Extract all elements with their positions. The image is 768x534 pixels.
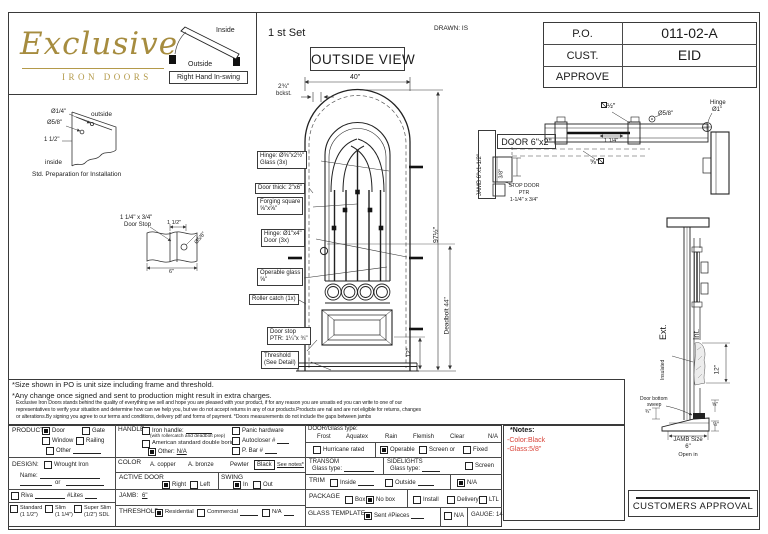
approval-title: CUSTOMERS APPROVAL [628, 502, 758, 512]
form-line [8, 457, 502, 458]
handle-other-value[interactable]: N/A [177, 449, 187, 455]
pbar-blank[interactable] [265, 448, 277, 454]
footnote-2: *Any change once signed and sent to prod… [12, 392, 272, 400]
trim-inside-blank[interactable] [358, 480, 374, 486]
pbar-label: P. Bar # [242, 448, 263, 454]
checkbox-operable[interactable] [380, 446, 388, 454]
checkbox-swing-in[interactable] [233, 481, 241, 489]
color-copper[interactable]: A. copper [150, 462, 176, 469]
stop-door-line3: 1-1/4" x 3/4" [500, 197, 548, 204]
transom-glass-blank[interactable] [344, 466, 374, 472]
glass-flemish[interactable]: Flemish [413, 434, 434, 441]
trim-outside-label: Outside [395, 480, 416, 486]
design-or-label: or [55, 480, 60, 487]
design-wrought-label: Wrought Iron [54, 462, 89, 468]
riva-blank[interactable] [35, 493, 65, 499]
sidelights-glass-label: Glass type: [390, 466, 420, 472]
trim-na-label: N/A [467, 480, 477, 486]
or-line [20, 485, 52, 486]
dim-34: ¾" [645, 410, 651, 416]
callout-threshold: Threshold (See Detail) [261, 351, 299, 369]
form-line [8, 502, 115, 503]
autocloser-blank[interactable] [277, 438, 289, 444]
callout-hinge-glass-line1: Hinge: Ø⅝"x2½" [260, 153, 304, 160]
gauge-label: GAUGE: 14 [471, 512, 503, 519]
int-label: Int. [693, 329, 701, 340]
callout-door-thick-line: Door thick: 2"x6" [258, 185, 302, 192]
callout-roller-line: Roller catch (1x) [252, 296, 296, 303]
package-label: PACKAGE [309, 493, 340, 500]
dim-door-width: 40" [350, 74, 360, 82]
threshold-na-label: N/A [272, 510, 282, 516]
threshold-commercial-blank[interactable] [240, 510, 258, 516]
checkbox-fixed[interactable] [463, 446, 471, 454]
callout-forging: Forging square ⅝"x⅝" [257, 197, 303, 215]
checkbox-trim-na[interactable] [457, 479, 465, 487]
signature-line[interactable] [636, 497, 750, 499]
dim-square-half: ½" [601, 102, 615, 111]
checkbox-product-window[interactable] [42, 437, 50, 445]
drawing-sheet: Exclusive IRON DOORS Inside Outside Righ… [0, 0, 768, 534]
callout-hinge-door: Hinge: Ø1"x4" Door (3x) [261, 229, 305, 247]
threshold-residential-label: Residential [165, 510, 194, 516]
fixed-label: Fixed [473, 447, 488, 453]
glass-frost[interactable]: Frost [317, 434, 331, 441]
form-divider [440, 507, 441, 527]
checkbox-iron-handle[interactable] [142, 427, 150, 435]
glass-rain[interactable]: Rain [385, 434, 397, 441]
form-divider [305, 425, 306, 527]
form-line [115, 505, 305, 506]
trim-inside-label: Inside [340, 480, 356, 486]
cust-label: CUST. [543, 50, 622, 62]
design-label: DESIGN: [12, 461, 39, 468]
drawn-label: DRAWN: IS [434, 25, 468, 32]
template-na-label: N/A [454, 513, 464, 519]
screen-or-label: Screen or [429, 447, 455, 453]
footnote-fine-2: representatives to verify your situation… [16, 408, 421, 414]
callout-operable-glass: Operable glass ⅝" [257, 268, 303, 286]
square-half-text: ½" [607, 103, 615, 110]
checkbox-package-nobox[interactable] [366, 496, 374, 504]
color-pewter[interactable]: Pewter [230, 462, 249, 469]
checkbox-product-door[interactable] [42, 427, 50, 435]
dim-bottom-rail: 12" [407, 348, 414, 358]
operable-label: Operable [390, 447, 415, 453]
checkbox-super-slim[interactable] [74, 505, 82, 513]
swing-outside-label: Outside [188, 61, 212, 69]
info-table-line [543, 44, 757, 45]
active-left-label: Left [200, 482, 210, 488]
callout-roller-catch: Roller catch (1x) [249, 294, 299, 305]
callout-hinge-glass: Hinge: Ø⅝"x2½" Glass (3x) [257, 151, 307, 169]
checkbox-panic[interactable] [232, 427, 240, 435]
set-label: 1 st Set [268, 27, 305, 39]
super-slim-size-label: (1/2") SDL [84, 512, 110, 518]
design-name-blank[interactable] [40, 473, 100, 479]
checkbox-trim-inside[interactable] [330, 479, 338, 487]
threshold-na-blank[interactable] [284, 510, 294, 516]
form-line [305, 442, 502, 443]
dim-backset-label: bckst. [276, 91, 292, 98]
color-see-notes: See notes* [277, 462, 304, 468]
callout-threshold-line1: Threshold [264, 353, 296, 360]
sidelights-label: SIDELIGHTS [387, 459, 423, 466]
notes-title: *Notes: [510, 427, 535, 435]
stopdetail-name: Door Stop [124, 222, 151, 229]
jamb-form-label: JAMB: [119, 492, 138, 499]
color-black-selected[interactable]: Black [254, 460, 275, 470]
iron-handle-note: (with rollercatch and deadbolt prep) [150, 434, 225, 439]
form-divider [115, 425, 116, 527]
sidelights-glass-blank[interactable] [422, 466, 440, 472]
callout-stop-line2: PTR: 1¼"x ¾" [270, 336, 308, 343]
transom-glass-label: Glass type: [312, 466, 342, 472]
callout-forging-line1: Forging square [260, 199, 300, 206]
dim-door-height: 97½" [433, 227, 440, 243]
glass-aquatex[interactable]: Aquatex [346, 434, 368, 441]
dia-58-label: Ø5/8" [658, 111, 673, 118]
notes-glass: -Glass:5/8" [507, 446, 541, 454]
or-line [66, 485, 104, 486]
template-sent-label: Sent #Pieces [374, 513, 409, 519]
checkbox-threshold-na[interactable] [262, 509, 270, 517]
checkbox-product-gate[interactable] [82, 427, 90, 435]
stop-door-line1: STOP DOOR [500, 183, 548, 190]
stopdetail-dim: 1 1/2" [167, 220, 181, 226]
sweep-label-2: sweep [647, 403, 661, 409]
package-nobox-label: No box [376, 497, 395, 503]
form-divider [375, 442, 376, 457]
form-line [305, 474, 502, 475]
door-size-label: DOOR 6"x2" [497, 134, 556, 149]
hinge-label-1: Hinge [710, 100, 726, 107]
open-in-label: Open in [663, 452, 713, 458]
checkbox-screen[interactable] [419, 446, 427, 454]
footnote-fine-3: or alterations.By signing you agree to o… [16, 415, 371, 421]
form-divider [467, 507, 468, 527]
panic-label: Panic hardware [242, 428, 284, 434]
handle-label: HANDLE [118, 426, 144, 433]
checkbox-sidelights-screen[interactable] [465, 462, 473, 470]
lites-blank[interactable] [85, 493, 97, 499]
design-name-label: Name: [20, 473, 38, 479]
logo-underline [22, 68, 164, 69]
checkbox-product-railing[interactable] [76, 437, 84, 445]
form-divider [407, 489, 408, 507]
checkbox-design-wrought[interactable] [44, 461, 52, 469]
checkbox-package-delivery[interactable] [447, 496, 455, 504]
glass-clear[interactable]: Clear [450, 434, 464, 441]
package-install-label: Install [423, 497, 439, 503]
color-bronze[interactable]: A. bronze [188, 462, 214, 469]
checkbox-riva[interactable] [11, 492, 19, 500]
square-58-text: ⅝" [590, 159, 598, 166]
po-value: 011-02-A [622, 26, 757, 41]
view-title: OUTSIDE VIEW [310, 47, 405, 71]
sidelights-screen-label: Screen [475, 463, 494, 469]
prep-caption: Std. Preparation for Installation [32, 171, 121, 178]
checkbox-swing-out[interactable] [253, 481, 261, 489]
jamb-form-value[interactable]: 6" [142, 493, 147, 500]
product-other-blank[interactable] [73, 448, 101, 454]
callout-door-thick: Door thick: 2"x6" [255, 183, 305, 194]
standard-label: Standard [20, 505, 42, 511]
product-railing-label: Railing [86, 438, 104, 444]
stop-door-note: STOP DOOR PTR 1-1/4" x 3/4" [500, 183, 548, 203]
glass-type-label: DOOR/Glass type: [308, 426, 358, 433]
hurricane-label: Hurricane rated [323, 447, 364, 453]
callout-operable-line2: ⅝" [260, 277, 300, 284]
swing-inside-label: Inside [216, 27, 235, 35]
checkbox-threshold-commercial[interactable] [197, 509, 205, 517]
dim-square-58: ⅝" [590, 158, 604, 167]
slim-label: Slim [55, 505, 66, 511]
form-divider [218, 472, 219, 489]
po-label: P.O. [543, 28, 622, 40]
checkbox-autocloser[interactable] [232, 437, 240, 445]
checkbox-product-other[interactable] [46, 447, 54, 455]
square-bar-icon [598, 158, 604, 164]
active-door-label: ACTIVE DOOR [119, 474, 164, 481]
slim-size-label: (1 1/4") [55, 512, 73, 518]
callout-hinge-door-line2: Door (3x) [264, 238, 302, 245]
lites-label: #Lites [67, 493, 83, 499]
checkbox-pbar[interactable] [232, 447, 240, 455]
prep-dim: 1 1/2" [44, 137, 59, 144]
callout-forging-line2: ⅝"x⅝" [260, 206, 300, 213]
product-door-label: Door [52, 428, 65, 434]
stopdetail-width: 6" [169, 269, 174, 275]
checkbox-handle-other[interactable] [148, 448, 156, 456]
checkbox-active-left[interactable] [190, 481, 198, 489]
callout-threshold-line2: (See Detail) [264, 360, 296, 367]
jamb-size-label: JAMB 6"x1-1/2" [477, 154, 483, 196]
glass-template-label: GLASS TEMPLATE [308, 510, 365, 517]
american-boring-label: American standard double boring [152, 441, 237, 447]
product-window-label: Window [52, 438, 73, 444]
prep-outside: outside [91, 111, 112, 118]
product-gate-label: Gate [92, 428, 105, 434]
handle-other-label: Other: [158, 449, 175, 455]
swing-type-label: Right Hand In-swing [169, 71, 248, 84]
form-line [115, 472, 305, 473]
autocloser-label: Autocloser # [242, 438, 275, 444]
package-ltl-label: LTL [489, 497, 499, 503]
dim-58-jamb: ⅝" [712, 403, 718, 409]
footnote-1: *Size shown in PO is unit size including… [12, 381, 214, 389]
dim-12-jamb: 12" [715, 365, 722, 375]
checkbox-template-sent[interactable] [364, 512, 372, 520]
callout-door-stop: Door stop PTR: 1¼"x ¾" [267, 327, 311, 345]
callout-hinge-glass-line2: Glass (3x) [260, 160, 304, 167]
threshold-commercial-label: Commercial [207, 510, 238, 516]
threshold-label: THRESHOLD [119, 508, 159, 515]
callout-stop-line1: Door stop [270, 329, 308, 336]
transom-label: TRANSOM [309, 459, 339, 466]
prep-inside: inside [45, 159, 62, 166]
callout-operable-line1: Operable glass [260, 270, 300, 277]
swing-out-label: Out [263, 482, 273, 488]
notes-color: -Color:Black [507, 437, 545, 445]
footnote-fine-1: Exclusive Iron Doors stands behind the q… [16, 401, 402, 407]
form-divider [450, 474, 451, 489]
ext-label: Ext. [659, 324, 668, 340]
swing-in-label: In [243, 482, 248, 488]
logo-subtitle: IRON DOORS [62, 72, 152, 82]
logo-title: Exclusive [20, 26, 178, 62]
jamb-size-text: JAMB Size [663, 437, 713, 444]
cust-value: EID [622, 48, 757, 63]
trim-outside-blank[interactable] [418, 480, 434, 486]
form-line [305, 507, 502, 508]
jamb-size-value: 6" [663, 444, 713, 451]
dim-114: 1 1/4" [604, 138, 618, 144]
dim-half-jamb: ½" [713, 423, 719, 429]
callout-hinge-door-line1: Hinge: Ø1"x4" [264, 231, 302, 238]
checkbox-american-boring[interactable] [142, 440, 150, 448]
template-sent-blank[interactable] [411, 513, 424, 519]
checkbox-template-na[interactable] [444, 512, 452, 520]
info-table-line [543, 66, 757, 67]
stopdetail-size: 1 1/4" x 3/4" [120, 215, 152, 222]
checkbox-standard[interactable] [10, 505, 18, 513]
prep-dia-quarter: Ø1/4" [51, 109, 66, 116]
standard-size-label: (1 1/2") [20, 512, 38, 518]
super-slim-label: Super Slim [84, 505, 111, 511]
checkbox-active-right[interactable] [162, 481, 170, 489]
product-other-label: Other [56, 448, 71, 454]
prep-dia-58: Ø5/8" [47, 120, 62, 127]
package-box-label: Box [355, 497, 365, 503]
dim-38: 3/8" [500, 169, 506, 179]
insulated-label: Insulated [661, 360, 666, 380]
hinge-label-2: Ø1" [712, 107, 722, 114]
product-label: PRODUCT: [12, 427, 45, 434]
checkbox-package-ltl[interactable] [479, 496, 487, 504]
trim-label: TRIM [309, 477, 325, 484]
riva-label: Riva [21, 493, 33, 499]
checkbox-threshold-residential[interactable] [155, 509, 163, 517]
dim-backset: 2¾" [278, 83, 289, 90]
form-divider [383, 457, 384, 474]
checkbox-trim-outside[interactable] [385, 479, 393, 487]
dim-deadbolt: Deadbolt 44" [445, 297, 452, 334]
checkbox-slim[interactable] [45, 505, 53, 513]
checkbox-hurricane[interactable] [313, 446, 321, 454]
package-delivery-label: Delivery [457, 497, 479, 503]
checkbox-package-box[interactable] [345, 496, 353, 504]
form-line [8, 489, 502, 490]
checkbox-package-install[interactable] [413, 496, 421, 504]
approve-label: APPROVE [543, 71, 622, 83]
glass-na[interactable]: N/A [488, 434, 498, 441]
color-label: COLOR [118, 459, 141, 466]
stop-door-line2: PTR [500, 190, 548, 197]
active-right-label: Right [172, 482, 186, 488]
